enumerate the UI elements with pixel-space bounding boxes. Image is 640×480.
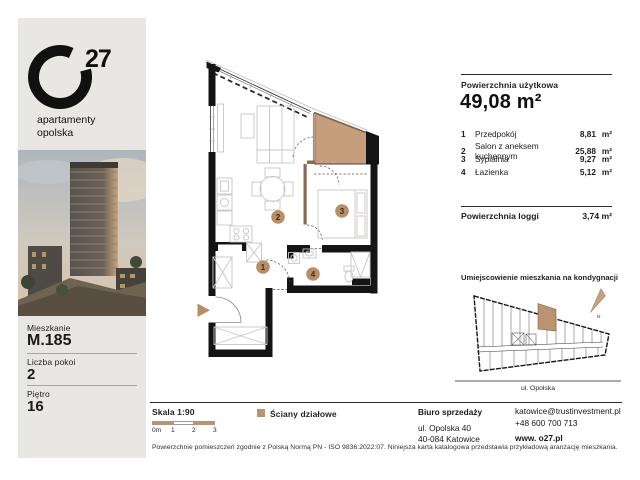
table-row: 1 Przedpokój 8,81 m²	[461, 128, 612, 141]
north-label: N	[597, 314, 601, 320]
street-label: ul. Opolska	[521, 385, 555, 392]
room-table: 1 Przedpokój 8,81 m² 2 Salon z aneksem k…	[461, 128, 612, 178]
rooms-count-value: 2	[27, 366, 35, 383]
disclaimer-text: Powierzchnie pomieszczeń zgodnie z Polsk…	[152, 444, 627, 451]
room-num: 3	[461, 154, 475, 164]
badge-4: 4	[311, 270, 316, 279]
badge-1: 1	[261, 263, 266, 272]
usable-area-label: Powierzchnia użytkowa	[461, 80, 558, 90]
highlighted-unit	[538, 304, 556, 332]
apartment-number: M.185	[27, 332, 71, 350]
floor-location-map: N ul. Opolska	[450, 282, 630, 396]
floor-value: 16	[27, 398, 44, 415]
contact-phone: +48 600 700 713	[515, 418, 625, 430]
brand-name-line1: apartamenty	[37, 114, 96, 126]
entrance-arrow-icon	[198, 304, 211, 318]
room-name: Łazienka	[475, 167, 562, 177]
unit-info-box: Mieszkanie M.185 Liczba pokoi 2 Piętro 1…	[18, 316, 146, 458]
table-row: 2 Salon z aneksem kuchennym 25,88 m²	[461, 141, 612, 154]
room-area: 5,12	[562, 167, 596, 177]
contact-block: katowice@trustinvestment.pl +48 600 700 …	[515, 406, 625, 445]
room-area: 9,27	[562, 154, 596, 164]
loggia-row: Powierzchnia loggi 3,74 m²	[461, 211, 612, 221]
office-street: ul. Opolska 40	[418, 423, 513, 435]
scale-tick: 0m	[152, 427, 161, 434]
summary-mid-rule	[461, 206, 612, 207]
brand-logo: 27 apartamenty opolska	[18, 18, 146, 150]
contact-website: www. o27.pl	[515, 433, 625, 445]
loggia-area	[314, 113, 366, 165]
facade-dashed-line	[213, 73, 307, 117]
window	[209, 106, 215, 152]
catalog-page: { "brand": { "logo_number": "27", "name_…	[0, 0, 640, 480]
loggia-label: Powierzchnia loggi	[461, 211, 582, 221]
room-num: 4	[461, 167, 475, 177]
contact-email: katowice@trustinvestment.pl	[515, 406, 625, 418]
room-badges: 1 2 3 4	[256, 204, 349, 281]
scale-tick: 1	[171, 427, 175, 434]
location-title: Umiejscowienie mieszkania na kondygnacji	[461, 273, 618, 282]
north-arrow-icon: N	[591, 289, 606, 321]
room-name: Przedpokój	[475, 129, 562, 139]
brand-name-line2: opolska	[37, 127, 73, 139]
partition-legend-swatch	[257, 409, 265, 417]
sales-office-block: Biuro sprzedaży ul. Opolska 40 40-084 Ka…	[418, 407, 513, 446]
usable-area-value: 49,08 m²	[460, 91, 542, 114]
building-photo	[18, 150, 146, 316]
room-unit: m²	[596, 154, 612, 164]
table-row: 4 Łazienka 5,12 m²	[461, 166, 612, 179]
room-area: 8,81	[562, 129, 596, 139]
floor-plan: 1 2 3 4	[175, 15, 455, 385]
scale-label: Skala 1:90	[152, 407, 195, 417]
brand-box: 27 apartamenty opolska	[18, 18, 146, 150]
scale-bar	[152, 421, 215, 439]
summary-top-rule	[461, 74, 612, 75]
room-unit: m²	[596, 167, 612, 177]
office-title: Biuro sprzedaży	[418, 407, 513, 419]
logo-number: 27	[85, 45, 111, 73]
partition-walls	[304, 161, 316, 225]
partition-legend-label: Ściany działowe	[270, 409, 337, 419]
badge-2: 2	[276, 213, 281, 222]
room-name: Sypialnia	[475, 154, 562, 164]
scale-tick: 3	[213, 427, 217, 434]
scale-tick: 2	[192, 427, 196, 434]
logo-ring-icon	[34, 51, 87, 104]
room-unit: m²	[596, 129, 612, 139]
table-row: 3 Sypialnia 9,27 m²	[461, 153, 612, 166]
badge-3: 3	[340, 207, 345, 216]
room-num: 1	[461, 129, 475, 139]
footer-rule	[150, 402, 622, 403]
loggia-value: 3,74 m²	[582, 211, 612, 221]
